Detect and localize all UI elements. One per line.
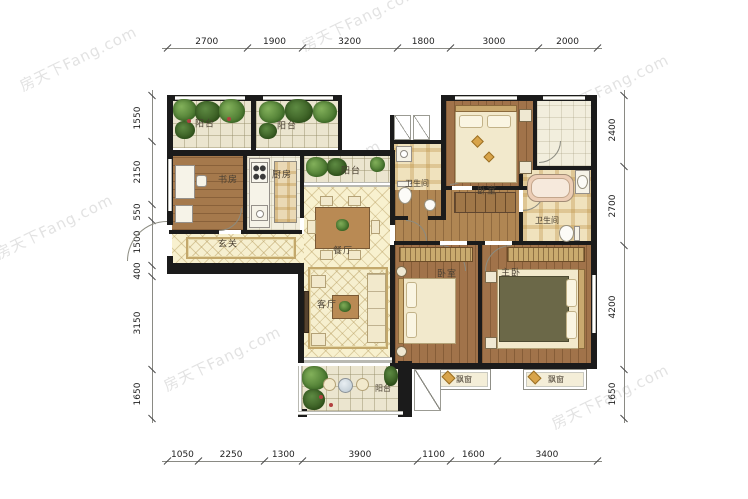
foyer-rug (186, 237, 296, 259)
nightstand-icon (396, 346, 407, 357)
washer-drum-icon (400, 150, 408, 158)
dimension-value: 4200 (608, 296, 618, 319)
bathtub-basin-icon (531, 178, 570, 198)
nightstand-icon (485, 337, 497, 349)
chair-icon (323, 378, 336, 391)
dimension-value: 1300 (272, 450, 295, 460)
centerpiece-icon (336, 219, 349, 231)
plant-icon (259, 101, 285, 123)
window (168, 159, 172, 211)
dimension-value: 1100 (422, 450, 445, 460)
headboard-icon (398, 278, 404, 344)
flower-icon (187, 119, 191, 123)
room-label-balcony: 阳台 (277, 123, 297, 132)
wall (300, 156, 304, 218)
room-label-bedroom: 卧室 (477, 188, 497, 197)
dimension-right: 2400270042001650 (603, 95, 629, 418)
wall (533, 100, 537, 166)
dining-chair-icon (320, 250, 333, 260)
pillow-icon (566, 279, 577, 307)
desk-icon (175, 165, 195, 199)
wall (512, 241, 591, 245)
wall (390, 150, 395, 225)
washer-icon (396, 146, 412, 162)
wall (167, 256, 173, 263)
dimension-value: 3400 (535, 450, 558, 460)
room-label-bathroom: 卫生间 (405, 180, 429, 188)
room-label-foyer: 玄关 (218, 241, 238, 250)
toilet-tank-icon (574, 226, 580, 241)
window (455, 96, 517, 100)
dimension-line (162, 461, 602, 462)
dimension-value: 550 (133, 204, 143, 221)
wall (441, 100, 446, 220)
wall (251, 97, 256, 150)
wall (390, 245, 395, 363)
dimension-value: 1800 (412, 37, 435, 47)
dimension-value: 3200 (338, 37, 361, 47)
wall (169, 230, 219, 234)
plant-icon (306, 157, 328, 177)
stove-icon (251, 162, 268, 183)
wall (446, 186, 452, 190)
plant-icon (175, 121, 195, 139)
wall (243, 156, 247, 233)
dimension-value: 2400 (608, 119, 618, 142)
wall (167, 263, 304, 274)
room-label-living: 客厅 (317, 302, 337, 311)
room-label-balcony: 阳台 (195, 121, 215, 130)
dimension-top: 270019003200180030002000 (167, 36, 597, 52)
plant-icon (370, 157, 385, 172)
dimension-value: 2150 (133, 161, 143, 184)
dimension-value: 2250 (220, 450, 243, 460)
room-label-balcony: 阳台 (375, 385, 391, 393)
flower-icon (329, 403, 333, 407)
blanket-icon (499, 276, 569, 342)
flower-icon (227, 117, 231, 121)
dimension-value: 3000 (482, 37, 505, 47)
room-label-dining: 餐厅 (333, 248, 353, 257)
plant-icon (173, 99, 197, 121)
floor-plan: 阳台 阳台 书房 厨房 阳台 玄关 餐厅 客厅 阳台 卫生间 卫生间 卧室 卧室… (167, 95, 597, 418)
flower-icon (319, 395, 323, 399)
room-label-bay-window: 飘窗 (548, 376, 564, 384)
dimension-value: 3150 (133, 311, 143, 334)
room-label-balcony: 阳台 (341, 168, 361, 177)
chair-icon (196, 175, 207, 187)
headboard-icon (578, 269, 585, 349)
nightstand-icon (519, 161, 532, 174)
sink-icon (251, 205, 268, 221)
dimension-value: 1050 (171, 450, 194, 460)
sink-basin-icon (256, 210, 264, 218)
wall (398, 361, 412, 417)
plant-icon (285, 99, 313, 123)
side-table-icon (175, 205, 193, 223)
nightstand-icon (485, 271, 497, 283)
pillow-icon (459, 115, 483, 128)
tv-cabinet-icon (304, 291, 309, 333)
balcony-railing (298, 411, 403, 415)
plant-icon (339, 301, 351, 312)
dimension-value: 2700 (195, 37, 218, 47)
room-label-bay-window: 飘窗 (456, 376, 472, 384)
nightstand-icon (396, 266, 407, 277)
window (543, 96, 585, 100)
wall (338, 97, 342, 150)
dining-chair-icon (307, 220, 316, 234)
pillow-icon (406, 312, 417, 338)
plant-icon (303, 389, 325, 410)
vent-shaft-icon (413, 115, 430, 140)
pillow-icon (566, 311, 577, 339)
room-label-kitchen: 厨房 (272, 172, 292, 181)
watermark: 房天下Fang.com (0, 189, 116, 264)
wall (478, 245, 482, 363)
dining-chair-icon (371, 220, 380, 234)
wall (169, 150, 394, 156)
headboard-icon (455, 105, 517, 112)
armchair-icon (311, 333, 326, 346)
room-label-bedroom: 卧室 (437, 271, 457, 280)
armchair-icon (311, 275, 326, 288)
floorplan-page: 房天下Fang.com 房天下Fang.com 房天下Fang.com 房天下F… (0, 0, 748, 499)
dimension-value: 2000 (556, 37, 579, 47)
window (592, 275, 596, 333)
dimension-value: 1900 (263, 37, 286, 47)
wardrobe-icon (399, 247, 473, 262)
room-label-study: 书房 (218, 177, 238, 186)
plant-icon (384, 366, 398, 386)
wardrobe-icon (507, 247, 585, 262)
window-balcony-dining (304, 182, 390, 187)
round-table-icon (338, 378, 353, 393)
wall (467, 241, 485, 245)
dimension-value: 2700 (608, 194, 618, 217)
wall (241, 230, 302, 234)
dining-chair-icon (320, 196, 333, 206)
dimension-value: 1550 (133, 106, 143, 129)
dimension-value: 3900 (348, 450, 371, 460)
dimension-value: 400 (133, 262, 143, 279)
shaft-icon (414, 369, 441, 411)
nightstand-icon (519, 109, 532, 122)
plant-icon (259, 123, 277, 139)
wall (394, 140, 446, 144)
wall (394, 241, 440, 245)
pillow-icon (487, 115, 511, 128)
window-living-balcony (304, 357, 392, 363)
plant-icon (219, 99, 245, 123)
room-label-bathroom: 卫生间 (535, 217, 559, 225)
dimension-value: 1650 (133, 382, 143, 405)
plant-icon (313, 101, 337, 123)
chair-icon (356, 378, 369, 391)
wall (428, 216, 446, 220)
sofa-icon (367, 273, 386, 343)
dimension-value: 1650 (608, 382, 618, 405)
dimension-bottom: 1050225013003900110016003400 (167, 449, 597, 465)
room-label-master-bedroom: 主卧 (501, 270, 521, 279)
dimension-value: 1600 (462, 450, 485, 460)
pillow-icon (406, 282, 417, 308)
watermark: 房天下Fang.com (16, 21, 141, 96)
dimension-line (624, 90, 625, 423)
dining-chair-icon (348, 196, 361, 206)
vent-shaft-icon (394, 115, 411, 140)
